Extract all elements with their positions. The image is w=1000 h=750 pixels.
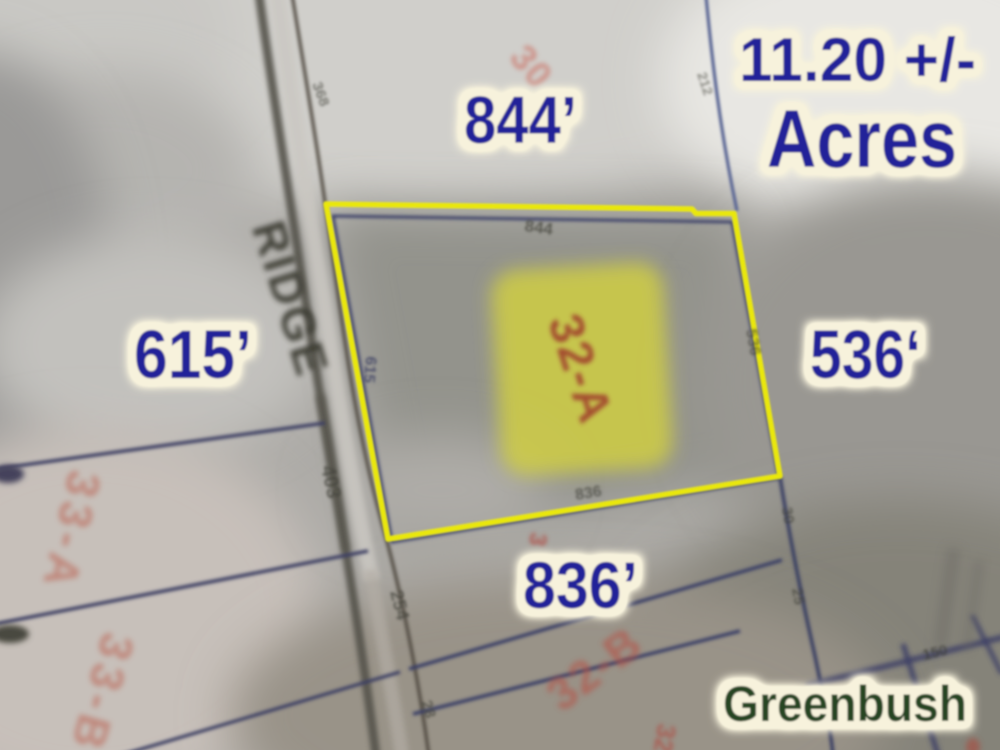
svg-text:30: 30	[778, 506, 798, 525]
svg-text:844: 844	[523, 216, 554, 239]
svg-text:Acres: Acres	[767, 94, 957, 185]
svg-text:11.20 +/-: 11.20 +/-	[739, 26, 976, 95]
svg-text:536‘: 536‘	[810, 316, 921, 393]
svg-text:Greenbush: Greenbush	[723, 676, 967, 732]
svg-text:25: 25	[788, 587, 808, 606]
svg-text:836’: 836’	[523, 548, 638, 622]
svg-text:844’: 844’	[464, 83, 577, 158]
svg-text:615’: 615’	[134, 316, 252, 393]
svg-text:615: 615	[360, 356, 379, 384]
svg-text:32: 32	[648, 722, 683, 750]
